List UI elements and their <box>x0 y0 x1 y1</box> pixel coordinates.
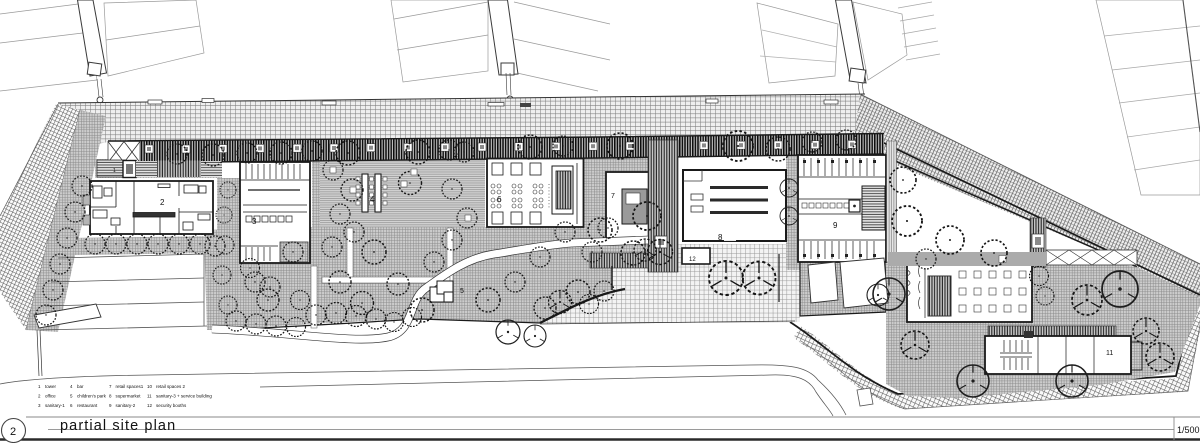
svg-text:8: 8 <box>718 233 723 242</box>
svg-text:retail spaces1: retail spaces1 <box>116 384 144 389</box>
svg-text:9: 9 <box>833 221 838 230</box>
svg-text:2: 2 <box>10 426 16 438</box>
svg-text:7: 7 <box>611 193 615 200</box>
svg-text:sanitary-3 + service building: sanitary-3 + service building <box>156 394 212 399</box>
svg-text:sanitary-1: sanitary-1 <box>45 403 65 408</box>
svg-text:2: 2 <box>160 198 165 207</box>
svg-text:12: 12 <box>147 403 153 408</box>
svg-text:restaurant: restaurant <box>77 403 98 408</box>
svg-text:11: 11 <box>1106 350 1113 357</box>
svg-text:1: 1 <box>113 168 116 174</box>
svg-text:12: 12 <box>689 257 696 263</box>
svg-text:11: 11 <box>147 394 152 399</box>
svg-text:supermarket: supermarket <box>116 394 142 399</box>
svg-text:10: 10 <box>147 384 153 389</box>
svg-text:5: 5 <box>460 288 464 295</box>
svg-text:security booths: security booths <box>156 403 187 408</box>
svg-text:4: 4 <box>370 195 375 204</box>
svg-text:tower: tower <box>45 384 57 389</box>
svg-text:retail spaces 2: retail spaces 2 <box>156 384 186 389</box>
svg-text:1/500: 1/500 <box>1177 425 1200 435</box>
svg-text:6: 6 <box>497 195 502 204</box>
svg-text:children's park: children's park <box>77 394 107 399</box>
svg-text:partial site plan: partial site plan <box>60 418 176 434</box>
svg-text:3: 3 <box>252 217 257 226</box>
svg-text:sanitary-2: sanitary-2 <box>116 403 136 408</box>
svg-text:bar: bar <box>77 384 84 389</box>
svg-text:office: office <box>45 394 56 399</box>
